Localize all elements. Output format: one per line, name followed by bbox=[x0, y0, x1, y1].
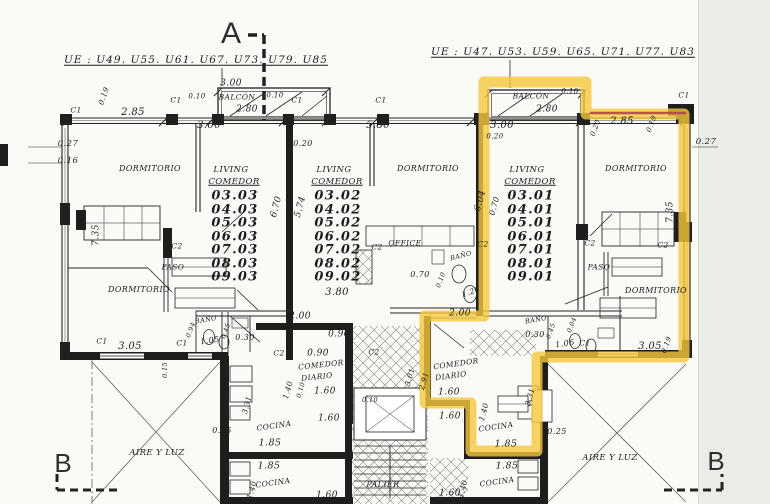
dim: 0.19 bbox=[646, 115, 658, 134]
column-label: C1 bbox=[291, 96, 302, 104]
dim: 0.27 bbox=[696, 138, 717, 147]
room-label-cocina: COCINA bbox=[478, 421, 514, 433]
column-label: C1 bbox=[96, 337, 107, 345]
dim: 0.10 bbox=[362, 397, 378, 404]
dim: 3.31 bbox=[241, 395, 253, 415]
column-label: C1 bbox=[375, 96, 386, 104]
dim: 1.40 bbox=[282, 380, 294, 400]
room-label-comedor: COMEDOR bbox=[311, 178, 362, 187]
unit-number-right-highlighted: 03.01 bbox=[507, 190, 554, 203]
dim: 2.80 bbox=[536, 106, 558, 115]
dim: 3.05 bbox=[118, 342, 142, 352]
room-label-comedor-diario: DIARIO bbox=[435, 370, 467, 382]
dim: 1.40 bbox=[478, 402, 490, 422]
room-label-bano: BAÑO bbox=[449, 250, 472, 262]
dim: 1.40 bbox=[246, 480, 258, 500]
dim: 6.04 bbox=[474, 189, 488, 212]
room-label-cocina: COCINA bbox=[256, 420, 292, 432]
room-label-comedor-diario: COMEDOR bbox=[433, 357, 479, 371]
unit-number-right-highlighted: 04.01 bbox=[507, 203, 554, 216]
dim: 5.74 bbox=[294, 195, 308, 218]
dim: 0.20 bbox=[486, 134, 503, 141]
unit-number-left: 04.03 bbox=[211, 203, 258, 216]
room-label-dormitorio: DORMITORIO bbox=[625, 287, 687, 295]
dim: 3.80 bbox=[325, 288, 349, 298]
dim: 0.10 bbox=[296, 381, 306, 398]
room-label-bano: BAÑO bbox=[195, 315, 218, 325]
unit-number-middle: 04.02 bbox=[314, 203, 361, 216]
room-label-balcon: BALCÓN bbox=[513, 92, 550, 100]
unit-number-middle: 07.02 bbox=[314, 244, 361, 257]
unit-number-middle: 03.02 bbox=[314, 190, 361, 203]
room-label-dormitorio: DORMITORIO bbox=[108, 286, 170, 294]
dim: 1.60 bbox=[438, 389, 460, 398]
dim: 1.20 bbox=[461, 285, 481, 298]
dim: 0.94 bbox=[185, 321, 197, 338]
room-label-palier: PALIER bbox=[366, 481, 399, 489]
dim: 1.60 bbox=[439, 413, 461, 422]
dim: 2.00 bbox=[289, 313, 311, 322]
dim: 0.19 bbox=[97, 86, 110, 106]
dim: 1.60 bbox=[314, 388, 336, 397]
unit-number-right-highlighted: 08.01 bbox=[507, 257, 554, 270]
dim: 0.30 bbox=[525, 331, 544, 339]
column-label: C2 bbox=[371, 243, 382, 251]
unit-number-right-highlighted: 09.01 bbox=[507, 271, 554, 284]
dim: 6.70 bbox=[270, 195, 284, 218]
unit-number-left: 03.03 bbox=[211, 190, 258, 203]
room-label-aire-y-luz: AIRE Y LUZ bbox=[129, 449, 184, 458]
dim: 0.25 bbox=[212, 427, 231, 435]
room-label-dormitorio: DORMITORIO bbox=[119, 165, 181, 173]
room-label-bano: BAÑO bbox=[525, 315, 548, 325]
dim: 0.70 bbox=[410, 271, 429, 279]
unit-number-middle: 08.02 bbox=[314, 257, 361, 270]
room-label-cocina: COCINA bbox=[479, 476, 515, 488]
unit-number-left: 06.03 bbox=[211, 230, 258, 243]
column-label: C1 bbox=[170, 96, 181, 104]
dim: 0.19 bbox=[661, 336, 673, 355]
room-label-comedor-diario: COMEDOR bbox=[298, 359, 344, 371]
unit-number-left: 09.03 bbox=[211, 271, 258, 284]
dim: 0.90 bbox=[328, 331, 350, 340]
column-label: C2 bbox=[273, 349, 284, 357]
dim: 0.20 bbox=[590, 119, 602, 138]
room-label-living: LIVING bbox=[316, 166, 351, 175]
room-label-aire-y-luz: AIRE Y LUZ bbox=[582, 454, 637, 463]
dim: 0.30 bbox=[235, 334, 254, 342]
dim: 7.35 bbox=[93, 224, 102, 246]
unit-number-right-highlighted: 06.01 bbox=[507, 230, 554, 243]
dim: 2.80 bbox=[236, 106, 258, 115]
unit-number-left: 07.03 bbox=[211, 244, 258, 257]
section-marker-b-left: B bbox=[54, 450, 71, 476]
unit-number-middle: 05.02 bbox=[314, 217, 361, 230]
room-label-living: LIVING bbox=[509, 166, 544, 175]
dim: 3.31 bbox=[524, 387, 536, 407]
room-label-dormitorio: DORMITORIO bbox=[605, 165, 667, 173]
column-label: C1 bbox=[579, 339, 590, 347]
dim: 0.45 bbox=[220, 322, 232, 339]
dim: 0.10 bbox=[561, 89, 578, 96]
dim: 2.85 bbox=[610, 117, 634, 127]
dim: 2.00 bbox=[449, 310, 471, 319]
section-marker-a: A bbox=[221, 19, 241, 49]
unit-number-middle: 06.02 bbox=[314, 230, 361, 243]
ue-list-left: UE : U49. U55. U61. U67. U73. U79. U85 bbox=[64, 55, 328, 66]
room-label-cocina: COCINA bbox=[255, 477, 291, 489]
room-label-dormitorio: DORMITORIO bbox=[397, 165, 459, 173]
dim: 2.91 bbox=[418, 371, 430, 391]
column-label: C1 bbox=[70, 106, 81, 114]
dim: 1.85 bbox=[496, 461, 519, 471]
dim: 0.27 bbox=[58, 140, 79, 149]
room-label-living: LIVING bbox=[213, 166, 248, 175]
dim: 0.04 bbox=[566, 316, 578, 333]
dim: 0.10 bbox=[188, 94, 205, 101]
unit-number-right-highlighted: 07.01 bbox=[507, 244, 554, 257]
dim: 3.00 bbox=[490, 121, 514, 131]
room-label-office: OFFICE bbox=[388, 239, 421, 247]
dim: 0.70 bbox=[489, 196, 502, 217]
room-label-balcon: BALCÓN bbox=[219, 93, 256, 101]
dim: 3.01 bbox=[404, 367, 416, 387]
column-label: C1 bbox=[678, 91, 689, 99]
ue-list-right: UE : U47. U53. U59. U65. U71. U77. U83 bbox=[431, 47, 695, 58]
column-label: C1 bbox=[176, 339, 187, 347]
dim: 0.90 bbox=[307, 350, 329, 359]
unit-number-right-highlighted: 05.01 bbox=[507, 217, 554, 230]
dim: 3.00 bbox=[197, 121, 221, 131]
room-label-comedor-diario: DIARIO bbox=[301, 372, 333, 383]
column-label: C2 bbox=[368, 348, 379, 356]
dim: 1.06 bbox=[555, 339, 575, 350]
dim: 0.10 bbox=[435, 271, 447, 288]
dim: 5.80 bbox=[366, 121, 390, 131]
dim: 2.85 bbox=[121, 108, 145, 118]
dim: 0.25 bbox=[547, 428, 566, 436]
unit-number-left: 08.03 bbox=[211, 257, 258, 270]
unit-number-middle: 09.02 bbox=[314, 271, 361, 284]
dim: 1.85 bbox=[259, 438, 282, 448]
dim: 0.20 bbox=[293, 140, 312, 148]
dim: 1.05 bbox=[200, 336, 220, 347]
dim: 1.85 bbox=[258, 461, 281, 471]
dim: 3.00 bbox=[220, 80, 242, 89]
dim: 0.10 bbox=[266, 93, 283, 100]
column-label: C2 bbox=[657, 241, 668, 249]
room-label-comedor: COMEDOR bbox=[208, 178, 259, 187]
room-label-comedor: COMEDOR bbox=[504, 178, 555, 187]
unit-number-left: 05.03 bbox=[211, 217, 258, 230]
dim: 0.45 bbox=[545, 322, 557, 339]
dim: 1.60 bbox=[316, 492, 338, 501]
dim: 1.60 bbox=[318, 415, 340, 424]
room-label-paso: PASO bbox=[588, 263, 611, 271]
dim: 1.60 bbox=[439, 490, 461, 499]
column-label: C2 bbox=[477, 240, 488, 248]
column-label: C2 bbox=[584, 239, 595, 247]
dim: 7.35 bbox=[667, 201, 676, 223]
floor-plan-scan: ABBUE : U49. U55. U61. U67. U73. U79. U8… bbox=[0, 0, 770, 504]
dim: 0.16 bbox=[58, 157, 79, 166]
dim: 0.15 bbox=[162, 362, 169, 378]
column-label: C2 bbox=[171, 242, 182, 250]
labels-layer: ABBUE : U49. U55. U61. U67. U73. U79. U8… bbox=[0, 0, 770, 504]
dim: 1.85 bbox=[495, 439, 518, 449]
dim: 3.05 bbox=[638, 342, 662, 352]
room-label-paso: PASO bbox=[162, 263, 185, 271]
section-marker-b-right: B bbox=[707, 448, 724, 474]
